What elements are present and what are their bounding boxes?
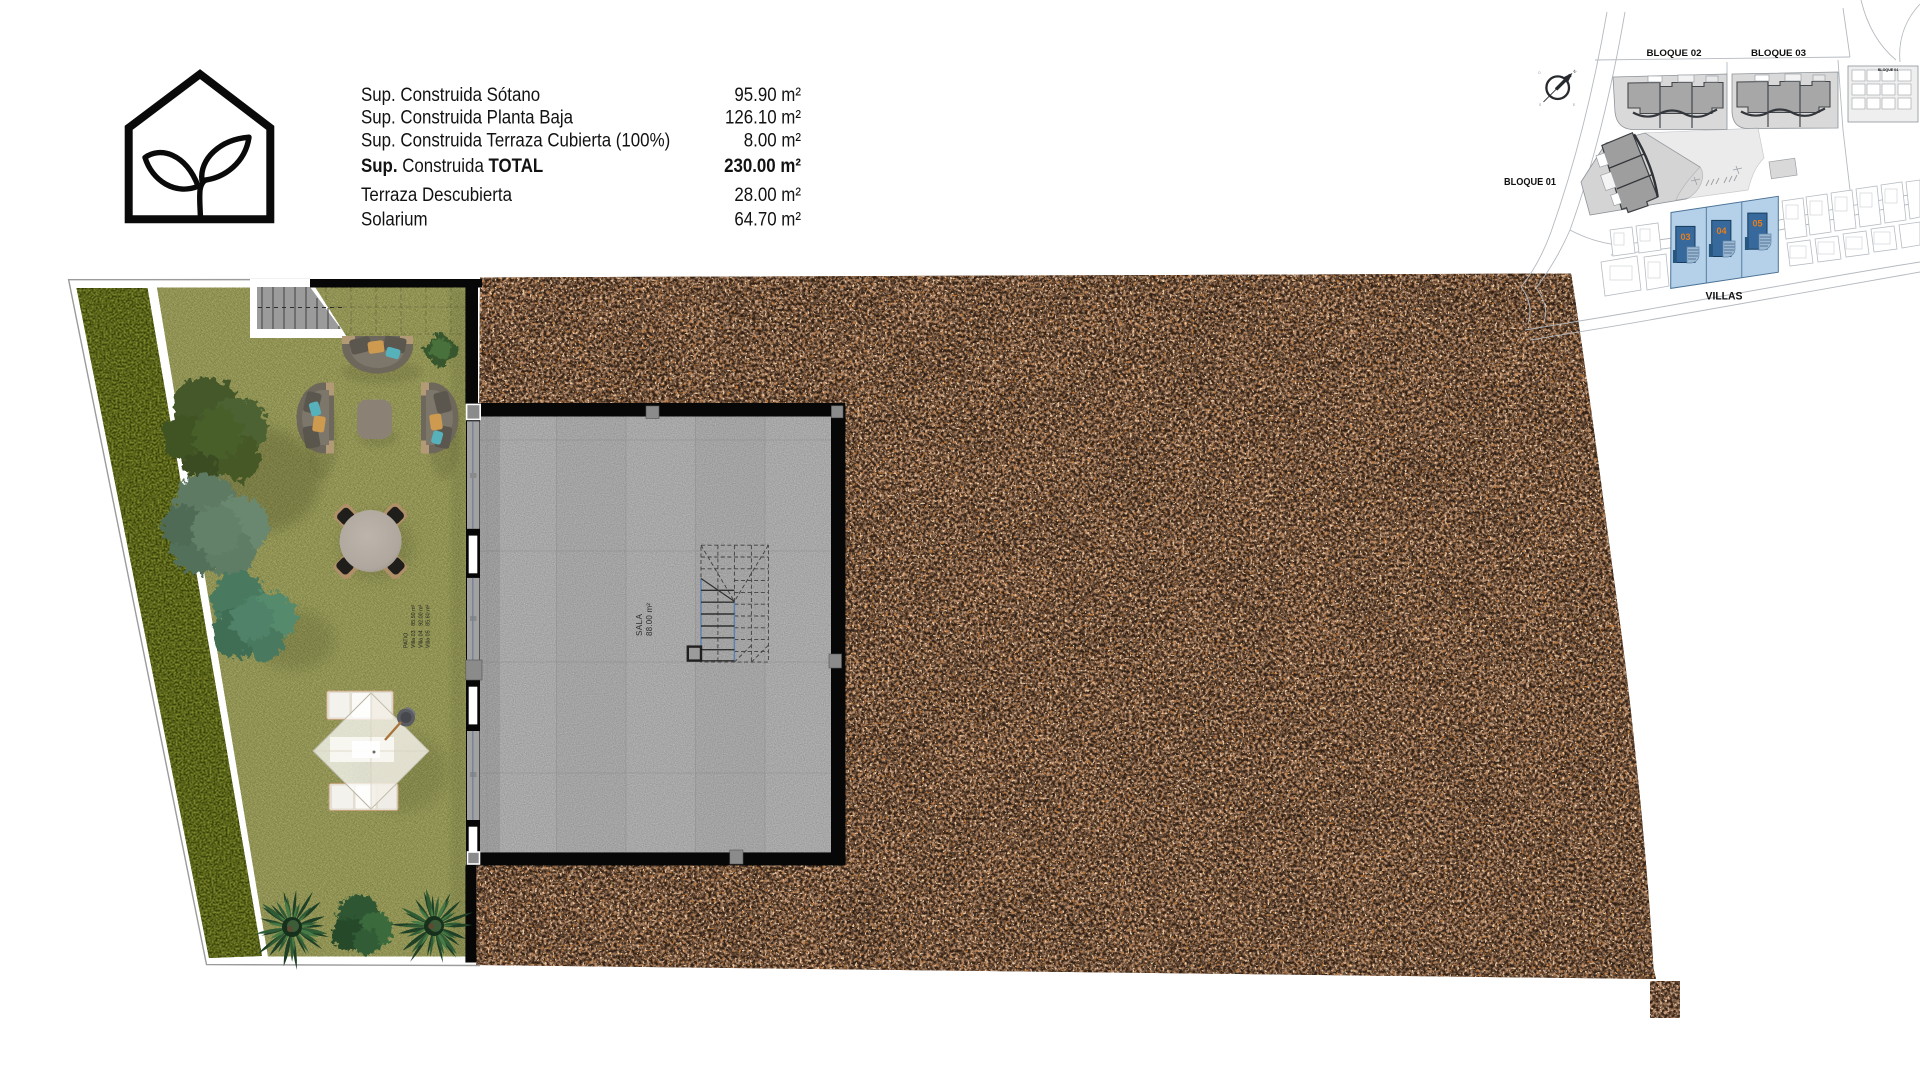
svg-text:BLOQUE 04: BLOQUE 04 <box>1878 68 1898 72</box>
svg-text:SALA: SALA <box>635 613 644 636</box>
svg-text:Sup. Construida Terraza Cubier: Sup. Construida Terraza Cubierta (100%) <box>361 131 670 152</box>
svg-text:95.90 m²: 95.90 m² <box>734 85 801 106</box>
svg-text:64.70 m²: 64.70 m² <box>734 210 801 231</box>
svg-text:04: 04 <box>1716 226 1726 236</box>
svg-text:05: 05 <box>1752 219 1762 229</box>
svg-text:O: O <box>1538 71 1541 75</box>
svg-text:Sup. Construida TOTAL: Sup. Construida TOTAL <box>361 156 543 177</box>
svg-text:8.00 m²: 8.00 m² <box>744 131 802 152</box>
svg-text:PATIO: PATIO <box>404 633 410 648</box>
svg-text:S: S <box>1539 103 1542 107</box>
svg-text:BLOQUE 03: BLOQUE 03 <box>1751 48 1806 59</box>
svg-text:Solarium: Solarium <box>361 210 428 231</box>
svg-text:E: E <box>1573 103 1576 107</box>
svg-text:28.00 m²: 28.00 m² <box>734 185 801 206</box>
svg-text:Villa 04 92.00 m²: Villa 04 92.00 m² <box>418 604 424 648</box>
svg-text:03: 03 <box>1680 232 1690 242</box>
svg-text:Sup. Construida Sótano: Sup. Construida Sótano <box>361 85 540 106</box>
svg-text:N: N <box>1572 69 1578 75</box>
svg-text:Sup. Construida Planta Baja: Sup. Construida Planta Baja <box>361 108 573 129</box>
svg-text:88.00 m²: 88.00 m² <box>645 603 654 636</box>
svg-text:Villa 03 85.50 m²: Villa 03 85.50 m² <box>411 604 417 648</box>
svg-text:126.10 m²: 126.10 m² <box>725 108 801 129</box>
svg-text:Terraza Descubierta: Terraza Descubierta <box>361 185 512 206</box>
svg-text:BLOQUE 02: BLOQUE 02 <box>1647 48 1702 59</box>
svg-text:VILLAS: VILLAS <box>1706 291 1743 303</box>
svg-text:Villa 05 85.60 m²: Villa 05 85.60 m² <box>426 604 432 648</box>
svg-text:BLOQUE 01: BLOQUE 01 <box>1504 176 1556 188</box>
svg-text:230.00 m²: 230.00 m² <box>724 156 801 177</box>
